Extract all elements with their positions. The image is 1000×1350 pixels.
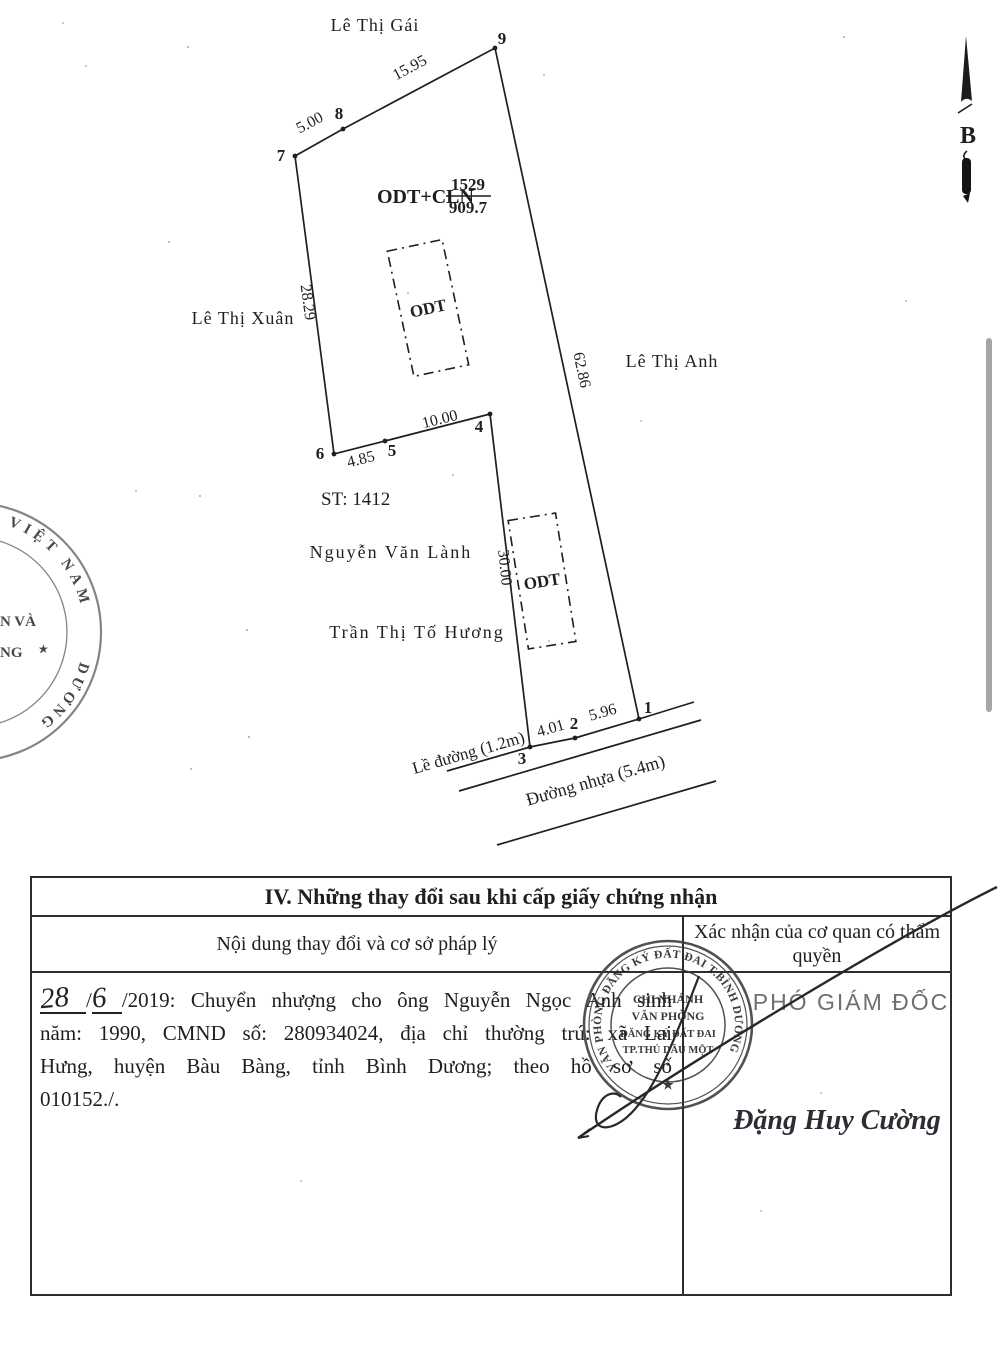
neighbor-left: Lê Thị Xuân xyxy=(192,308,295,328)
scrollbar-thumb[interactable] xyxy=(986,338,992,712)
north-arrow-label: B xyxy=(960,123,976,149)
section-title: IV. Những thay đổi sau khi cấp giấy chứn… xyxy=(32,878,950,917)
stamp-line-1: CHI NHÁNH xyxy=(633,992,704,1006)
edge-length-5_96: 5.96 xyxy=(587,701,619,725)
changes-table: IV. Những thay đổi sau khi cấp giấy chứn… xyxy=(30,876,952,1296)
stamp-line-2: VĂN PHÒNG xyxy=(632,1009,705,1023)
vertex-dots xyxy=(293,46,642,750)
handwritten-month: 6 xyxy=(92,986,122,1014)
handwritten-day: 28 xyxy=(40,986,86,1014)
vertex-label-1: 1 xyxy=(644,698,653,717)
seal-star: ★ xyxy=(38,642,49,656)
vertex-label-8: 8 xyxy=(335,104,344,123)
vertex-label-2: 2 xyxy=(570,714,579,733)
vertex-label-6: 6 xyxy=(316,444,325,463)
vertex-label-3: 3 xyxy=(518,749,527,768)
edge-length-15_95: 15.95 xyxy=(390,52,430,84)
parcel-label: ODT+CLN 1529 909.7 xyxy=(377,175,491,217)
edge-length-5_00: 5.00 xyxy=(294,109,327,137)
parcel-area-text: 909.7 xyxy=(449,198,488,217)
edge-length-62_86: 62.86 xyxy=(569,351,593,390)
edge-length-4_85: 4.85 xyxy=(345,448,376,471)
neighbor-bottom2: Trần Thị Tố Hương xyxy=(329,622,504,642)
office-stamp: VĂN PHÒNG ĐĂNG KÝ ĐẤT ĐAI T.BÌNH DƯƠNG C… xyxy=(575,932,765,1122)
stamp-dot: • xyxy=(666,1057,670,1071)
approver-title: PHÓ GIÁM ĐỐC xyxy=(746,989,956,1016)
vertex-label-9: 9 xyxy=(498,29,507,48)
stamp-line-3: ĐĂNG KÝ ĐẤT ĐAI xyxy=(620,1027,716,1040)
neighbor-top: Lê Thị Gái xyxy=(331,15,420,35)
north-arrow-icon: B xyxy=(958,36,976,203)
parcel-number-text: 1529 xyxy=(451,175,485,194)
parcel-boundary xyxy=(295,48,639,747)
vertex-label-5: 5 xyxy=(388,441,397,460)
edge-length-30_00: 30.00 xyxy=(494,549,515,587)
odt-box-2: ODT xyxy=(508,513,576,649)
edge-length-4_01: 4.01 xyxy=(535,717,567,741)
seal-fragment-2: NG xyxy=(0,645,23,661)
neighbor-right: Lê Thị Anh xyxy=(626,351,719,371)
sheet-number: ST: 1412 xyxy=(321,489,390,510)
edge-length-10_00: 10.00 xyxy=(420,407,459,432)
seal-fragment-1: N VÀ xyxy=(0,613,36,630)
edge-length-28_29: 28.29 xyxy=(297,283,319,321)
vertex-label-4: 4 xyxy=(475,417,484,436)
vertex-label-7: 7 xyxy=(277,146,286,165)
cadastral-diagram: ODT ODT 1 2 3 4 5 6 7 8 9 5.00 15.95 xyxy=(0,0,1000,870)
stamp-line-4: TP.THỦ DẦU MỘT xyxy=(623,1043,714,1056)
stamp-star: ★ xyxy=(662,1077,674,1092)
neighbor-bottom1: Nguyễn Văn Lành xyxy=(310,542,473,562)
odt-box-1: ODT xyxy=(387,240,468,377)
partial-official-seal: VIỆT NAM DƯƠNG N VÀ NG ★ xyxy=(0,495,130,775)
scanned-certificate-page: ODT ODT 1 2 3 4 5 6 7 8 9 5.00 15.95 xyxy=(0,0,1000,1350)
odt-box-2-label: ODT xyxy=(522,569,562,594)
odt-box-1-label: ODT xyxy=(408,295,449,321)
